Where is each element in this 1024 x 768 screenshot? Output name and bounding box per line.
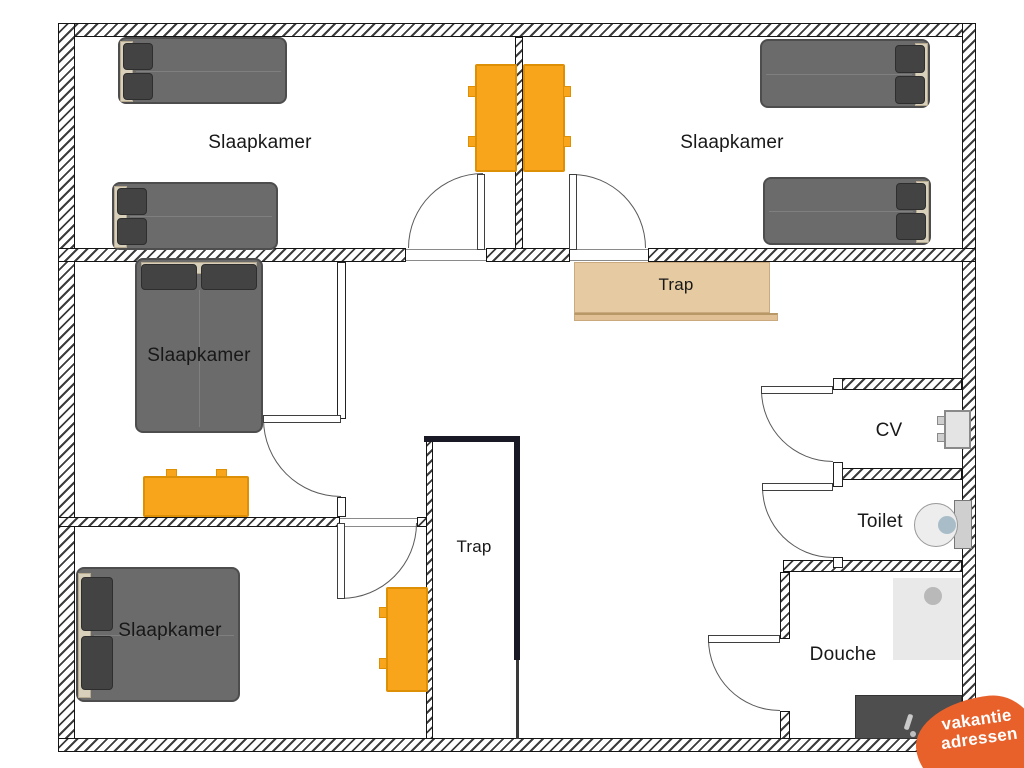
pillow	[81, 636, 113, 690]
stairwell-outline-right	[514, 436, 520, 660]
room-label-slaapkamer: Slaapkamer	[680, 132, 783, 154]
wall-bottom-bedroom-top	[58, 517, 340, 527]
bed	[112, 182, 278, 250]
desk-knob	[468, 136, 476, 147]
door-leaf	[761, 386, 833, 394]
door-leaf	[569, 174, 577, 250]
room-label-trap-stairwell: Trap	[456, 537, 491, 557]
room-label-douche: Douche	[810, 644, 877, 666]
wall-hallway-left	[337, 497, 346, 517]
wall-hallway-left	[337, 262, 346, 419]
pillow	[201, 264, 257, 290]
bed	[763, 177, 931, 245]
desk	[143, 476, 249, 517]
pillow	[117, 188, 147, 215]
room-label-cv: CV	[876, 420, 903, 442]
room-label-trap-upper: Trap	[658, 275, 693, 295]
wall-douche-left	[780, 711, 790, 739]
door-leaf	[477, 174, 485, 250]
door-leaf	[708, 635, 780, 643]
cv-boiler-connector	[937, 433, 945, 442]
pillow	[895, 76, 925, 104]
door-threshold	[570, 249, 648, 261]
pillow	[81, 577, 113, 631]
wall-cv-top	[835, 378, 962, 390]
door-swing-arc	[263, 419, 341, 497]
shower-head-icon	[910, 731, 916, 737]
wall-toilet-bottom	[783, 560, 962, 572]
stairwell-outline-top	[424, 436, 520, 442]
wall-douche-left	[780, 572, 790, 639]
desk-knob	[563, 136, 571, 147]
wall-outer-top	[58, 23, 976, 37]
shower-drain	[924, 587, 942, 605]
wall-toilet-left	[833, 557, 843, 568]
door-leaf	[263, 415, 341, 423]
door-swing-arc	[408, 173, 483, 248]
room-label-slaapkamer: Slaapkamer	[208, 132, 311, 154]
door-swing-arc	[762, 487, 833, 558]
room-label-slaapkamer: Slaapkamer	[118, 620, 221, 642]
stairwell-outline-right-thin	[516, 660, 519, 739]
wall-cv-left	[833, 462, 843, 487]
wall-outer-left	[58, 23, 75, 752]
wall-mid-horizontal	[486, 248, 570, 262]
room-label-toilet: Toilet	[857, 511, 903, 533]
wall-outer-right	[962, 23, 976, 752]
blanket-seam	[136, 71, 281, 72]
wall-cv-toilet-divider	[833, 468, 962, 480]
wall-mid-horizontal	[648, 248, 976, 262]
pillow	[141, 264, 197, 290]
toilet-flush-button	[938, 516, 956, 534]
pillow	[123, 43, 153, 70]
door-swing-arc	[572, 174, 646, 248]
desk	[386, 587, 428, 692]
door-threshold	[406, 249, 486, 261]
desk	[475, 64, 517, 172]
door-leaf	[337, 523, 345, 599]
desk-knob	[379, 658, 387, 669]
door-leaf	[762, 483, 833, 491]
staircase-step-edge	[574, 313, 778, 321]
desk-knob	[563, 86, 571, 97]
pillow	[123, 73, 153, 100]
desk-knob	[468, 86, 476, 97]
desk-knob	[216, 469, 227, 477]
cv-boiler	[944, 410, 971, 449]
door-swing-arc	[761, 390, 833, 462]
wall-outer-bottom	[58, 738, 976, 752]
blanket-seam	[130, 216, 272, 217]
desk-knob	[379, 607, 387, 618]
pillow	[117, 218, 147, 245]
cv-boiler-connector	[937, 416, 945, 425]
room-label-slaapkamer: Slaapkamer	[147, 345, 250, 367]
blanket-seam	[769, 211, 913, 212]
desk	[523, 64, 565, 172]
pillow	[896, 183, 926, 210]
door-swing-arc	[708, 639, 780, 711]
wall-cv-left	[833, 378, 843, 390]
blanket-seam	[766, 74, 912, 75]
floor-plan: Slaapkamer Slaapkamer Slaapkamer Slaapka…	[0, 0, 1024, 768]
pillow	[895, 45, 925, 73]
bed	[760, 39, 930, 108]
bed	[118, 37, 287, 104]
desk-knob	[166, 469, 177, 477]
pillow	[896, 213, 926, 240]
